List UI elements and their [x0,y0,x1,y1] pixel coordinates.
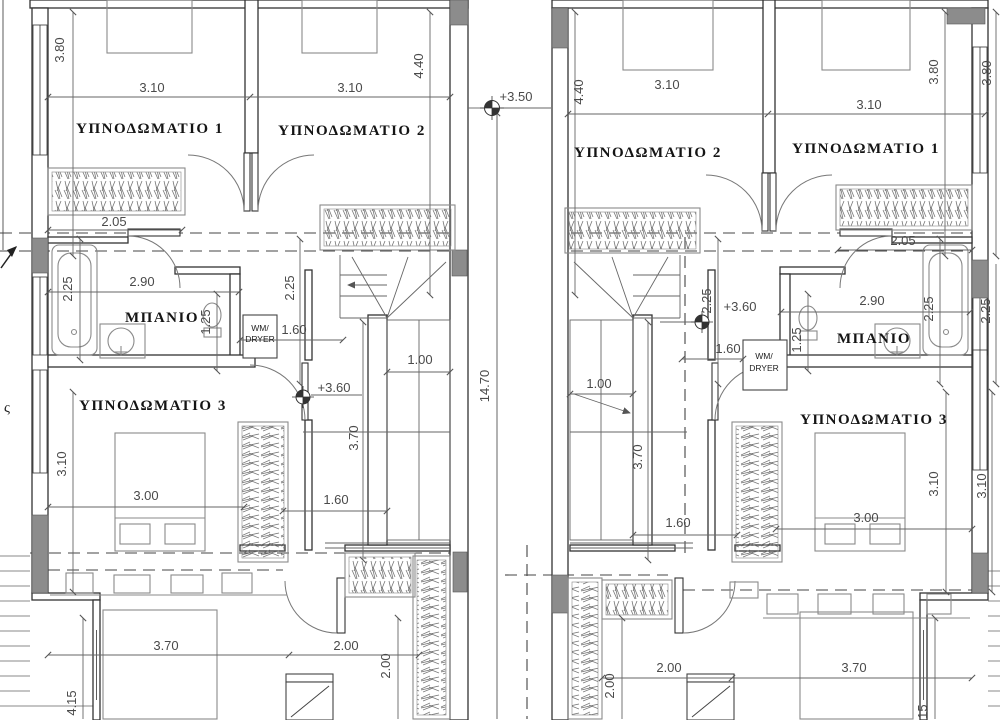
room-label-bath-left: ΜΠΑΝΙΟ [125,310,199,326]
wardrobe-bed1-right [836,185,972,230]
section-arrow [1,246,17,268]
wardrobe-bed2-right [565,208,700,253]
dim-200b-right: 2.00 [602,673,617,698]
dim-310b-left: 3.10 [337,80,362,95]
door-arc-bed1-left [188,155,244,211]
door-arc-bed1-right [776,175,832,231]
dim-310a-right: 3.10 [654,77,679,92]
wardrobe-bed2-left [320,205,455,250]
window-left-1 [33,25,47,155]
stair-direction-arrow-right [574,394,630,413]
dim-310d-right: 3.10 [974,473,989,498]
dim-100-right: 1.00 [586,376,611,391]
washer-label-right-line1: WM/ [755,351,773,361]
dashed-lines [0,233,988,719]
dim-225a-right: 2.25 [699,288,714,313]
room-label-bedroom2-left: ΥΠΝΟΔΩΜΑΤΙΟ 2 [278,123,426,139]
dim-225c-right: 2.25 [978,298,993,323]
level-upper: +3.50 [500,89,533,104]
bed-bed3-left [115,433,205,551]
door-arc-bed4-right [683,581,735,633]
dim-total-height: 14.70 [477,370,492,403]
window-left-3 [33,370,47,473]
dim-225b-right: 2.25 [921,296,936,321]
room-label-bedroom1-left: ΥΠΝΟΔΩΜΑΤΙΟ 1 [76,121,224,137]
shaft-left [286,674,333,720]
floor-plan: ΥΠΝΟΔΩΜΑΤΙΟ 1 ΥΠΝΟΔΩΜΑΤΙΟ 2 ΥΠΝΟΔΩΜΑΤΙΟ … [0,0,1000,720]
dim-160a-right: 1.60 [715,341,740,356]
door-leaf-bed3-right [712,363,718,420]
door-arc-bed3-left [250,365,305,420]
door-arc-bed4-left [285,581,337,633]
bed-bed2-right [623,0,713,70]
door-leaf-bed2-right [762,173,768,231]
bed-bed4-right [730,582,970,719]
dim-370a-right: 3.70 [630,444,645,469]
level-right-floor: +3.60 [724,299,757,314]
window-left-2 [33,277,47,355]
dim-200a-left: 2.00 [333,638,358,653]
dim-310b-right: 3.10 [856,97,881,112]
room-label-bath-right: ΜΠΑΝΙΟ [837,331,911,347]
door-leaf-bed4-right [675,578,683,633]
wardrobe-bed4-left-vertical [413,556,450,719]
room-label-bedroom3-right: ΥΠΝΟΔΩΜΑΤΙΟ 3 [800,412,948,428]
door-leaf-bed2-left [252,153,258,211]
dim-310c-left: 3.10 [54,451,69,476]
dim-205-left: 2.05 [101,214,126,229]
wardrobe-bed3-left [238,422,288,562]
dim-200a-right: 2.00 [656,660,681,675]
dim-300-right: 3.00 [853,510,878,525]
door-arc-bed2-right [706,175,762,231]
dim-440-right: 4.40 [571,79,586,104]
door-leaf-bed4-left [337,578,345,633]
dim-415-left: 4.15 [64,690,79,715]
dim-160b-left: 1.60 [323,492,348,507]
window-right-3 [973,350,987,470]
wardrobe-bed4-left-horizontal [345,553,415,597]
dim-300-left: 3.00 [133,488,158,503]
floor-plan-svg: ΥΠΝΟΔΩΜΑΤΙΟ 1 ΥΠΝΟΔΩΜΑΤΙΟ 2 ΥΠΝΟΔΩΜΑΤΙΟ … [0,0,1000,720]
dim-225a-left: 2.25 [60,276,75,301]
dim-290-right: 2.90 [859,293,884,308]
dim-370b-left: 3.70 [153,638,178,653]
door-leaf-bed1-right [770,173,776,231]
stair-right [570,255,693,548]
level-left-floor: +3.60 [318,380,351,395]
dim-160a-left: 1.60 [281,322,306,337]
dim-440-left: 4.40 [411,53,426,78]
dim-205-right: 2.05 [890,233,915,248]
dim-100-left: 1.00 [407,352,432,367]
door-leaf-bed1-left [244,153,250,211]
dim-160b-right: 1.60 [665,515,690,530]
room-label-bedroom2-right: ΥΠΝΟΔΩΜΑΤΙΟ 2 [574,145,722,161]
room-label-bedroom1-right: ΥΠΝΟΔΩΜΑΤΙΟ 1 [792,141,940,157]
dim-225b-left: 2.25 [282,275,297,300]
dim-370a-left: 3.70 [346,425,361,450]
bed-bed3-right [815,433,905,551]
sink-left [100,324,145,358]
bed-bed1-right [822,0,910,70]
dim-125-left: 1.25 [198,309,213,334]
dim-125-right: 1.25 [789,327,804,352]
dim-380b-right: 3.80 [979,60,994,85]
dim-415-right: 4.15 [915,704,930,720]
room-label-bedroom3-left: ΥΠΝΟΔΩΜΑΤΙΟ 3 [79,398,227,414]
wardrobe-bed1-left [48,168,185,215]
door-arc-bed2-left [258,155,314,211]
dim-290-left: 2.90 [129,274,154,289]
wardrobe-bed3-right [732,422,782,562]
door-arc-bath-right [840,236,892,288]
washer-label-left-line2: DRYER [245,334,275,344]
dim-380a-right: 3.80 [926,59,941,84]
shaft-right [687,674,734,720]
doors [128,153,892,633]
dim-370b-right: 3.70 [841,660,866,675]
dim-380-left: 3.80 [52,37,67,62]
dim-310c-right: 3.10 [926,471,941,496]
wardrobe-bed4-right-horizontal [602,580,672,619]
washer-label-right-line2: DRYER [749,363,779,373]
dim-310a-left: 3.10 [139,80,164,95]
exterior-steps-right [988,560,1000,719]
dim-200b-left: 2.00 [378,653,393,678]
washer-label-left-line1: WM/ [251,323,269,333]
wardrobe-bed4-right-vertical [568,578,602,719]
edge-letter: ς [4,400,10,416]
